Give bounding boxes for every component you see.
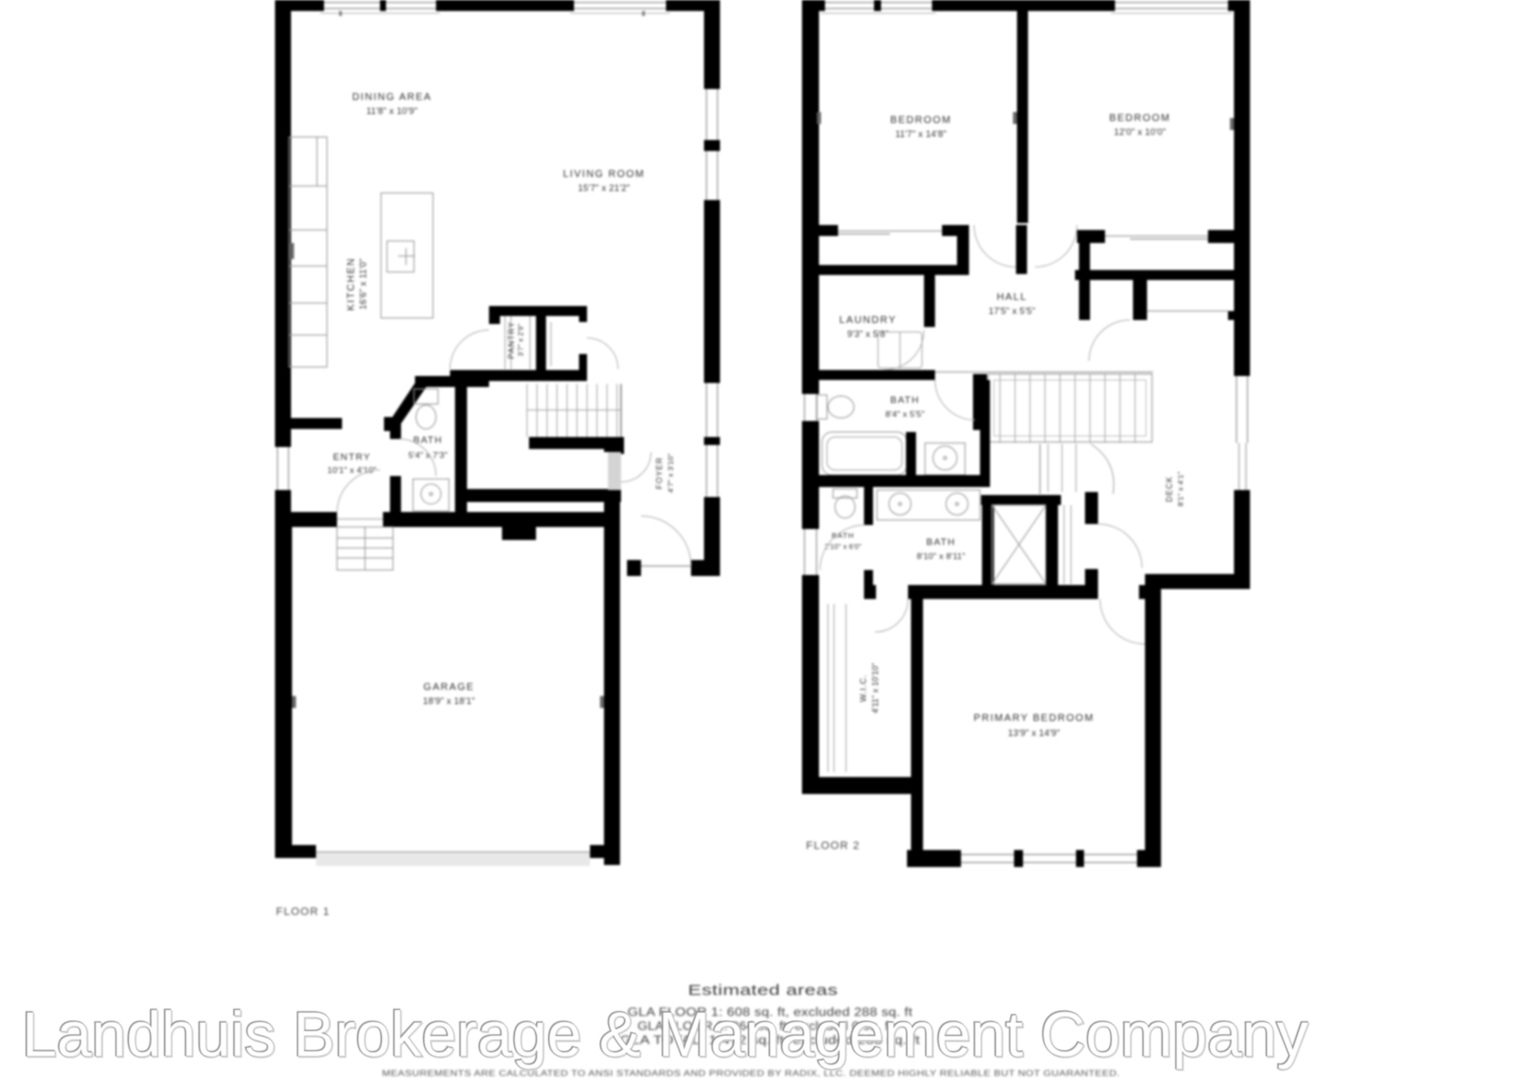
svg-text:PANTRY: PANTRY bbox=[507, 321, 516, 359]
svg-text:17'5" x 5'5": 17'5" x 5'5" bbox=[989, 306, 1036, 316]
svg-text:FOYER: FOYER bbox=[655, 457, 664, 490]
svg-text:13'9" x 14'9": 13'9" x 14'9" bbox=[1008, 728, 1060, 738]
svg-text:LAUNDRY: LAUNDRY bbox=[839, 315, 896, 326]
svg-text:Estimated areas: Estimated areas bbox=[688, 982, 838, 999]
svg-text:2'10" x 6'0": 2'10" x 6'0" bbox=[825, 544, 862, 551]
svg-text:9'3" x 5'8": 9'3" x 5'8" bbox=[847, 329, 889, 339]
svg-text:11'7" x 14'8": 11'7" x 14'8" bbox=[895, 129, 946, 139]
svg-text:FLOOR 1: FLOOR 1 bbox=[276, 906, 330, 918]
svg-text:DECK: DECK bbox=[1165, 476, 1174, 502]
svg-text:8'1" x 4'1": 8'1" x 4'1" bbox=[1176, 471, 1185, 506]
svg-text:3'7" x 2'9": 3'7" x 2'9" bbox=[518, 323, 525, 356]
svg-text:18'9" x 18'1": 18'9" x 18'1" bbox=[423, 696, 475, 706]
svg-text:GARAGE: GARAGE bbox=[423, 682, 474, 693]
svg-text:8'10" x 8'11": 8'10" x 8'11" bbox=[917, 551, 966, 561]
svg-text:Landhuis Brokerage & Managemen: Landhuis Brokerage & Management Company bbox=[22, 1000, 1308, 1070]
svg-text:5'4" x 7'3": 5'4" x 7'3" bbox=[408, 450, 447, 460]
svg-text:4'7" x 3'10": 4'7" x 3'10" bbox=[666, 453, 675, 492]
svg-text:BEDROOM: BEDROOM bbox=[890, 115, 951, 126]
svg-text:11'8" x 10'9": 11'8" x 10'9" bbox=[366, 106, 417, 116]
svg-text:16'6" x 11'0": 16'6" x 11'0" bbox=[358, 258, 368, 309]
svg-text:15'7" x 21'2": 15'7" x 21'2" bbox=[578, 183, 630, 193]
svg-text:DINING AREA: DINING AREA bbox=[352, 92, 432, 103]
svg-text:ENTRY: ENTRY bbox=[333, 452, 371, 463]
svg-text:KITCHEN: KITCHEN bbox=[346, 257, 357, 311]
svg-text:W.I.C.: W.I.C. bbox=[858, 674, 868, 702]
svg-text:BEDROOM: BEDROOM bbox=[1109, 113, 1170, 124]
svg-text:LIVING ROOM: LIVING ROOM bbox=[563, 169, 645, 180]
svg-text:12'0" x 10'0": 12'0" x 10'0" bbox=[1114, 127, 1166, 137]
svg-text:8'4" x 5'5": 8'4" x 5'5" bbox=[885, 409, 924, 419]
svg-text:BATH: BATH bbox=[926, 537, 955, 548]
svg-text:HALL: HALL bbox=[997, 292, 1028, 303]
svg-text:BATH: BATH bbox=[890, 395, 919, 406]
svg-text:10'1" x 4'10": 10'1" x 4'10" bbox=[327, 465, 376, 475]
svg-text:4'11" x 10'10": 4'11" x 10'10" bbox=[871, 663, 880, 714]
svg-text:FLOOR 2: FLOOR 2 bbox=[806, 840, 860, 852]
svg-text:BATH: BATH bbox=[832, 531, 855, 540]
svg-text:PRIMARY BEDROOM: PRIMARY BEDROOM bbox=[974, 713, 1095, 724]
